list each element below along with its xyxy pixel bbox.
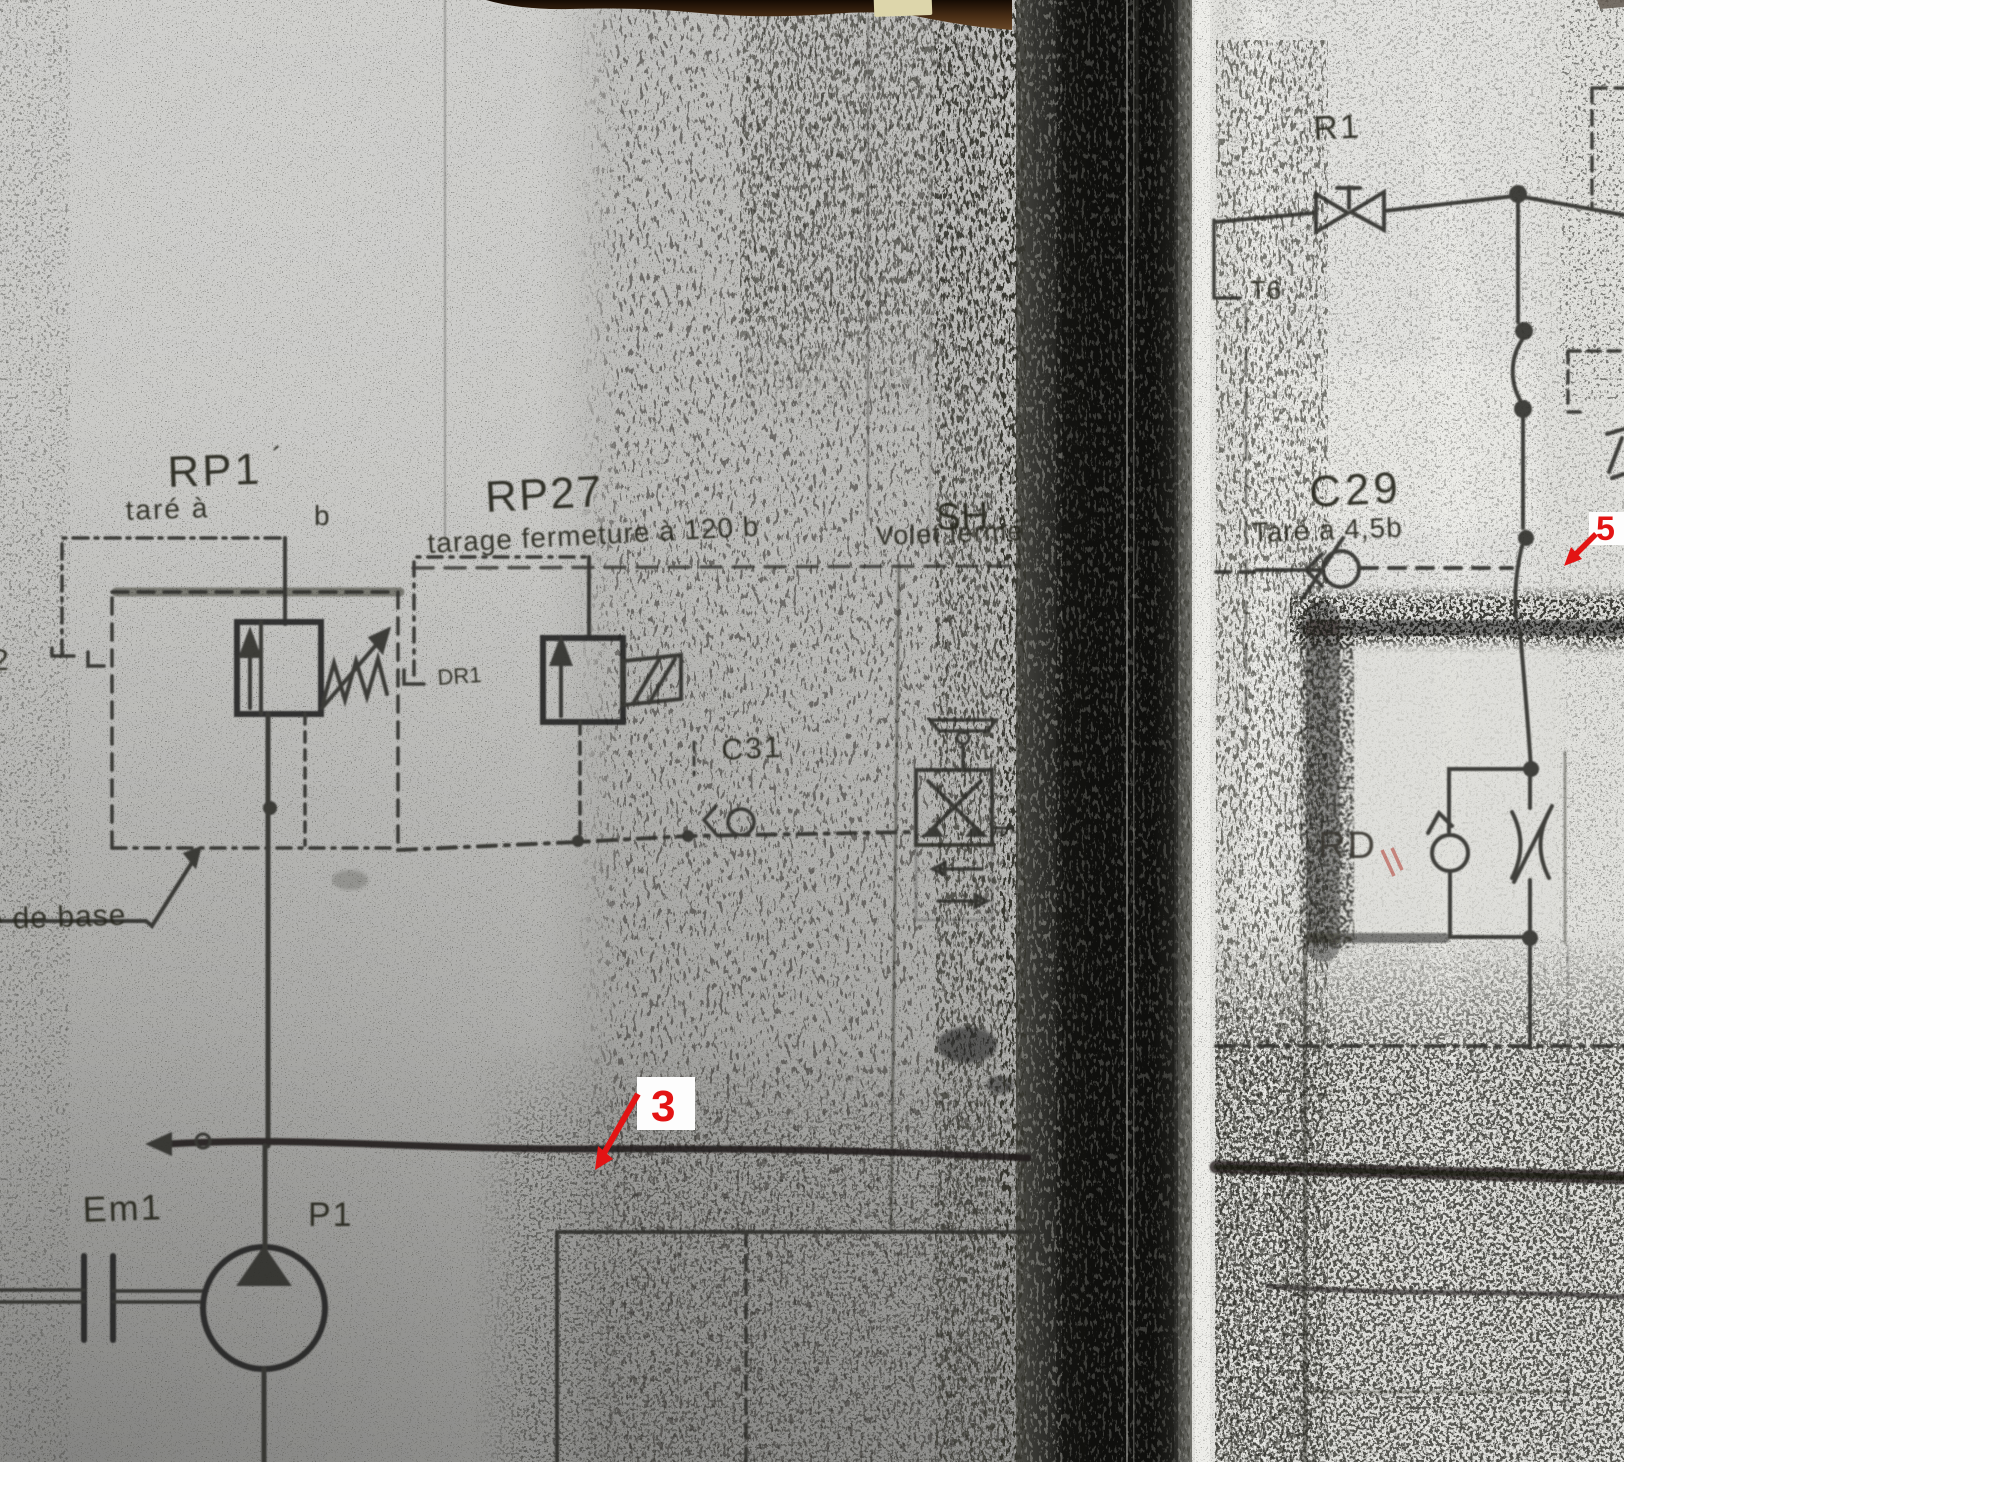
svg-text:2: 2 — [0, 644, 9, 677]
svg-text:5: 5 — [1596, 510, 1615, 548]
svg-text:Taré à 4,5b: Taré à 4,5b — [1251, 512, 1403, 548]
svg-text:C29: C29 — [1308, 463, 1403, 517]
svg-text:C31: C31 — [721, 731, 784, 767]
svg-text:´: ´ — [272, 442, 282, 475]
svg-text:RD: RD — [1318, 825, 1377, 867]
svg-text:RP27: RP27 — [484, 467, 604, 522]
svg-text:P1: P1 — [308, 1196, 354, 1234]
svg-text:RP1: RP1 — [167, 445, 263, 497]
svg-text:DR1: DR1 — [437, 662, 483, 690]
svg-text:b: b — [314, 500, 330, 531]
svg-text:T6: T6 — [1250, 275, 1282, 305]
svg-text:Volet fermé: Volet fermé — [875, 516, 1024, 551]
svg-text:Em1: Em1 — [82, 1186, 163, 1230]
svg-text:taré à: taré à — [125, 492, 210, 526]
svg-text:3: 3 — [651, 1082, 675, 1131]
svg-text:R1: R1 — [1312, 108, 1361, 148]
svg-text:e de base: e de base — [0, 899, 127, 937]
